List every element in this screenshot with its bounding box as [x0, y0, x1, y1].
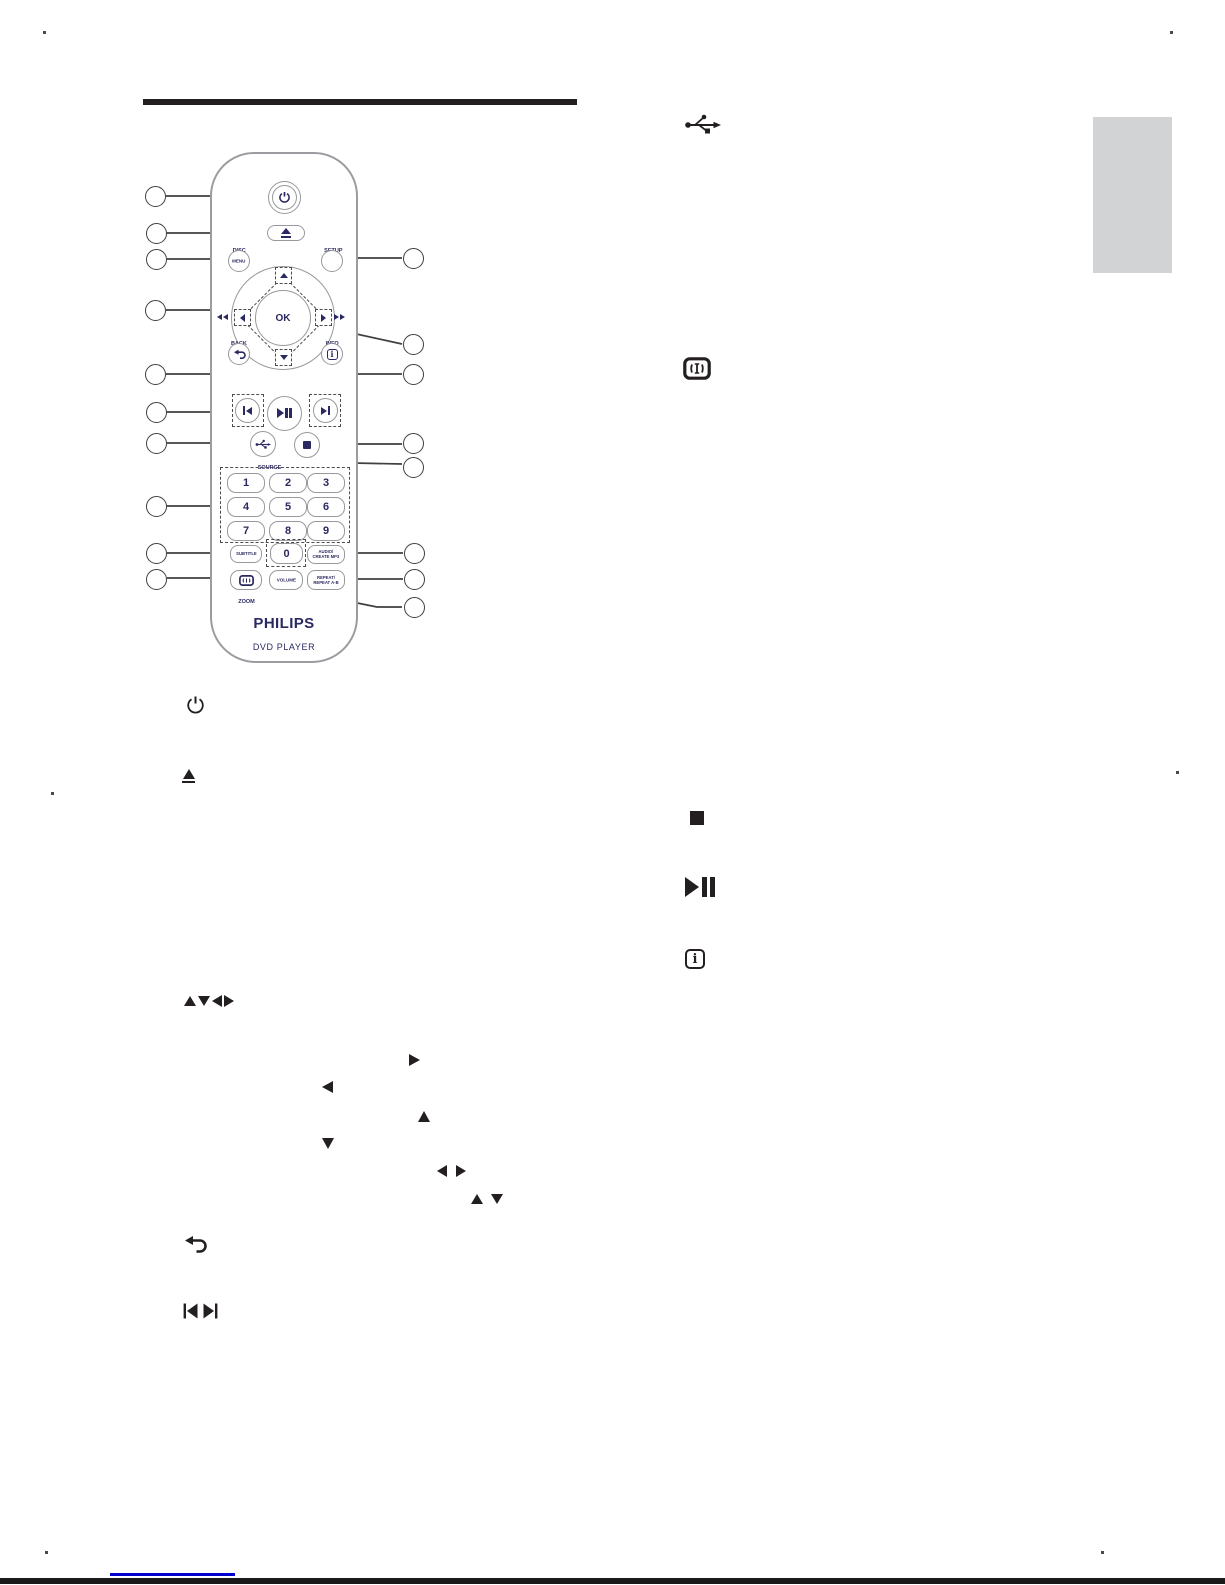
power-icon: [185, 695, 206, 716]
digit-0-button: 0: [270, 543, 303, 564]
fast-forward-icon: [334, 314, 345, 320]
digit-1-button: 1: [227, 473, 265, 493]
callout-circle-power: [145, 186, 166, 207]
callout-circle-nav: [145, 300, 166, 321]
stop-icon: [303, 441, 311, 449]
up-down-arrows-icon: [471, 1194, 503, 1204]
eject-icon: [182, 769, 195, 783]
info-icon: i: [685, 949, 705, 969]
screen-fit-icon: [239, 575, 254, 586]
callout-circle-repeat: [404, 569, 425, 590]
device-label: DVD PLAYER: [212, 642, 356, 652]
right-arrow-icon: [321, 314, 326, 322]
audio-create-mp3-button: AUDIO/ CREATE MP3: [307, 545, 345, 564]
callout-circle-audio: [404, 543, 425, 564]
eject-button: [267, 225, 305, 241]
previous-icon: [243, 406, 252, 415]
callout-circle-prev-next: [146, 402, 167, 423]
usb-icon: [255, 438, 272, 450]
up-arrow-icon: [418, 1111, 430, 1122]
callout-circle-stop: [403, 457, 424, 478]
callout-circle-info: [403, 364, 424, 385]
brand-logo: PHILIPS: [212, 615, 356, 632]
manual-page: DISC MENU SETUP OK: [0, 0, 1225, 1585]
remote-control-diagram: DISC MENU SETUP OK: [210, 152, 358, 663]
digit-5-button: 5: [269, 497, 307, 517]
back-icon: [233, 349, 246, 360]
disc-menu-button: MENU: [228, 250, 250, 272]
callout-circle-play-pause: [403, 433, 424, 454]
next-button: [313, 398, 338, 423]
callout-circle-eject: [146, 223, 167, 244]
digit-4-button: 4: [227, 497, 265, 517]
callout-circle-ok: [403, 334, 424, 355]
play-pause-icon: [685, 877, 715, 897]
nav-left-button: [234, 309, 251, 326]
nav-arrows-icon: [184, 995, 234, 1007]
screen-fit-icon: [683, 357, 711, 380]
play-pause-icon: [277, 408, 292, 418]
down-arrow-icon: [280, 355, 288, 360]
subtitle-button: SUBTITLE: [230, 545, 262, 563]
nav-right-button: [315, 309, 332, 326]
source-button: [250, 431, 276, 457]
digit-7-button: 7: [227, 521, 265, 541]
previous-button: [235, 398, 260, 423]
left-arrow-icon: [322, 1081, 333, 1093]
digit-9-button: 9: [307, 521, 345, 541]
callout-circle-back: [145, 364, 166, 385]
back-icon: [184, 1235, 208, 1254]
rewind-icon: [217, 314, 228, 320]
callout-circle-subtitle: [146, 543, 167, 564]
info-icon: i: [327, 349, 338, 360]
power-button-ring: [272, 185, 297, 210]
callout-circle-setup: [403, 248, 424, 269]
play-pause-button: [267, 396, 302, 431]
volume-button: VOLUME: [269, 570, 303, 590]
up-arrow-icon: [280, 273, 288, 278]
next-icon: [321, 406, 330, 415]
digit-3-button: 3: [307, 473, 345, 493]
zoom-button: [230, 570, 262, 590]
info-button: i: [321, 343, 343, 365]
ok-button: OK: [255, 290, 311, 346]
nav-down-button: [275, 349, 292, 366]
stop-button: [294, 432, 320, 458]
callout-circle-volume: [404, 597, 425, 618]
callout-circle-numpad: [146, 496, 167, 517]
setup-button: [321, 250, 343, 272]
usb-icon: [684, 111, 722, 139]
eject-icon: [281, 228, 291, 237]
callout-circle-disc-menu: [146, 249, 167, 270]
prev-next-icon: [181, 1302, 220, 1320]
back-button: [228, 343, 250, 365]
nav-up-button: [275, 267, 292, 284]
left-right-arrows-icon: [437, 1165, 466, 1177]
callout-circle-source: [146, 433, 167, 454]
digit-2-button: 2: [269, 473, 307, 493]
zoom-label: ZOOM: [230, 592, 262, 608]
repeat-button: REPEAT/ REPEAT A-B: [307, 570, 345, 590]
down-arrow-icon: [322, 1138, 334, 1149]
callout-circle-zoom: [146, 569, 167, 590]
stop-icon: [690, 811, 704, 825]
left-arrow-icon: [240, 314, 245, 322]
power-icon: [278, 191, 291, 204]
power-button: [268, 181, 301, 214]
right-arrow-icon: [409, 1054, 420, 1066]
callout-lines: [0, 0, 1225, 1585]
digit-6-button: 6: [307, 497, 345, 517]
digit-8-button: 8: [269, 521, 307, 541]
